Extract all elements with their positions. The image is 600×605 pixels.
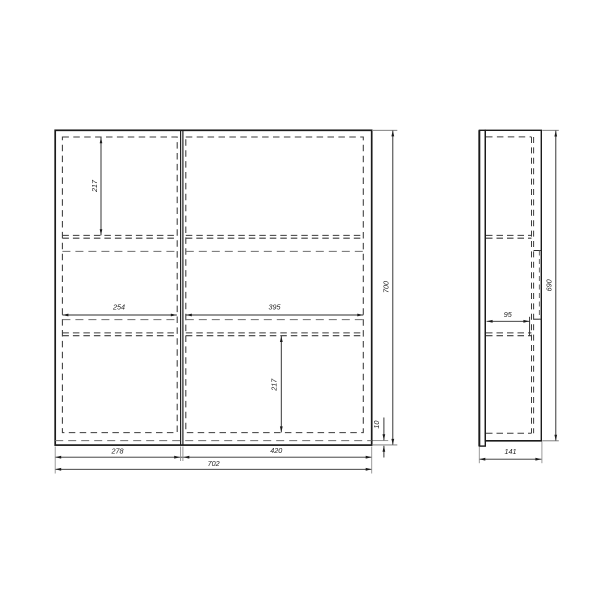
svg-text:700: 700 — [381, 281, 390, 293]
svg-text:141: 141 — [505, 447, 517, 456]
svg-text:10: 10 — [372, 421, 381, 429]
svg-text:95: 95 — [504, 310, 513, 319]
svg-text:690: 690 — [545, 279, 554, 291]
svg-text:420: 420 — [270, 446, 282, 455]
svg-text:278: 278 — [111, 447, 124, 456]
svg-text:395: 395 — [269, 303, 282, 312]
svg-text:254: 254 — [112, 303, 125, 312]
svg-text:217: 217 — [270, 378, 279, 392]
svg-text:217: 217 — [90, 179, 99, 193]
svg-text:702: 702 — [208, 459, 220, 468]
